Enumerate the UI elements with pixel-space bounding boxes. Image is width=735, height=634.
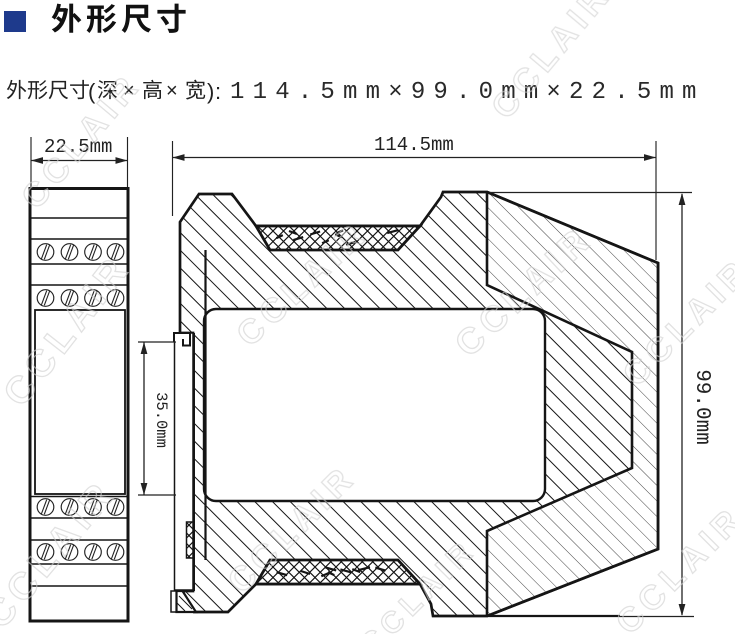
svg-text:): ) bbox=[207, 79, 214, 104]
svg-text::: : bbox=[215, 79, 221, 104]
svg-text:×: × bbox=[166, 80, 178, 102]
svg-text:114.5mm×99.0mm×22.5mm: 114.5mm×99.0mm×22.5mm bbox=[230, 79, 705, 106]
svg-text:99.0mm: 99.0mm bbox=[690, 369, 713, 445]
svg-text:114.5mm: 114.5mm bbox=[374, 134, 454, 156]
svg-text:35.0mm: 35.0mm bbox=[152, 392, 170, 448]
